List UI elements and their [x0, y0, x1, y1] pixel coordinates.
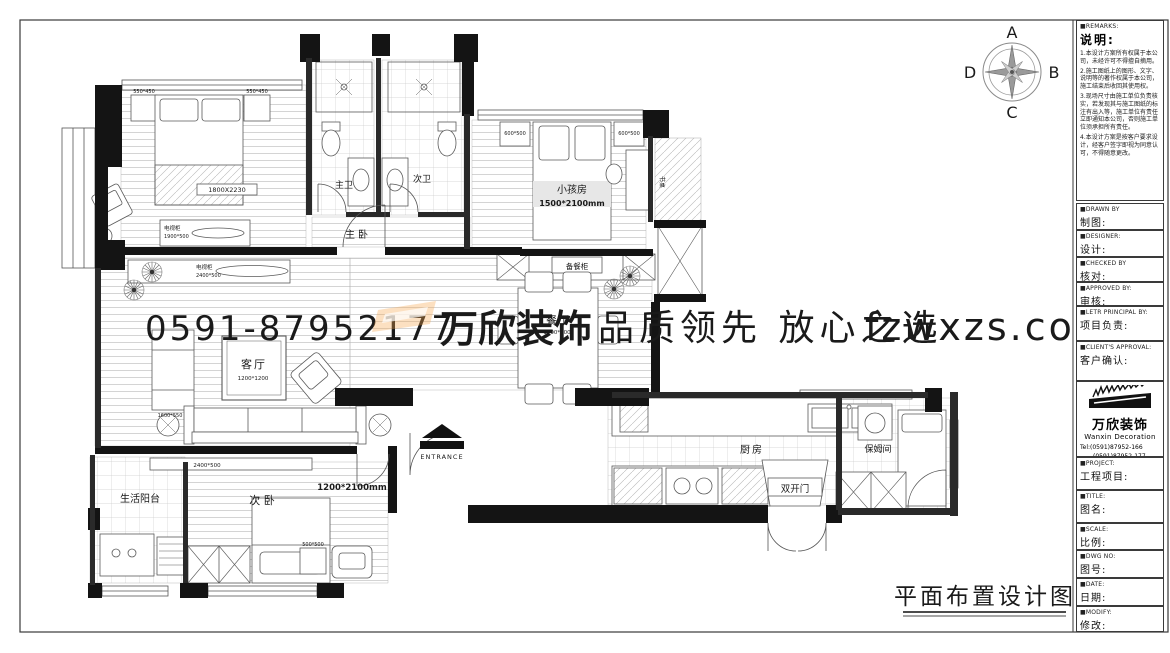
checked-by-zh-label: 核对:	[1080, 268, 1160, 282]
remarks-en-label: ■REMARKS:	[1080, 23, 1160, 30]
company-name-en: Wanxin Decoration	[1080, 433, 1160, 441]
modify-zh-label: 修改:	[1080, 617, 1160, 632]
master-bath-label: 主卫	[335, 179, 353, 191]
client-approval-zh-label: 客户确认:	[1080, 352, 1160, 367]
principal-box: ■LETR PRINCIPAL BY: 项目负责:	[1076, 306, 1164, 341]
drawing-sheet: ENTRANCE 主卧 主卫 次卫 小孩房 1500*2100mm 客厅 120…	[0, 0, 1170, 653]
laundry-balcony-label: 生活阳台	[120, 492, 160, 505]
client-approval-box: ■CLIENT'S APPROVAL: 客户确认:	[1076, 341, 1164, 381]
modify-box: ■MODIFY: 修改:	[1076, 606, 1164, 632]
client-approval-en-label: ■CLIENT'S APPROVAL:	[1080, 344, 1160, 351]
remarks-note: 1.本设计方案所有权属于本公司，未经许可不得擅自摘用。	[1080, 50, 1160, 66]
master-tv-cabinet-label: 电视柜	[164, 224, 181, 232]
living-tv-cabinet-label: 电视柜	[196, 263, 213, 271]
company-box: 万欣装饰 Wanxin Decoration Tel:(0591)87952-1…	[1076, 381, 1164, 457]
entrance-marker: ENTRANCE	[420, 424, 464, 461]
second-bedroom-size: 1200*2100mm	[317, 483, 387, 493]
second-bedroom-label: 次 卧	[249, 493, 275, 507]
designer-zh-label: 设计:	[1080, 241, 1160, 256]
remarks-zh-label: 说明:	[1080, 31, 1160, 48]
scale-zh-label: 比例:	[1080, 534, 1160, 549]
kids-cabinet-left-size: 600*500	[504, 131, 526, 137]
watermark: 0591-87952177 万欣装饰 品质领先 放心之选 fzwxzs.com	[145, 301, 1115, 351]
principal-zh-label: 项目负责:	[1080, 317, 1160, 332]
compass-east-label: B	[1049, 63, 1060, 82]
drawn-by-en-label: ■DRAWN BY	[1080, 206, 1160, 213]
drawn-by-zh-label: 制图:	[1080, 214, 1160, 229]
checked-by-box: ■CHECKED BY 核对:	[1076, 257, 1164, 282]
wardrobe-cabinet-size: 2400*500	[193, 463, 221, 469]
remarks-box: ■REMARKS: 说明: 1.本设计方案所有权属于本公司，未经许可不得擅自摘用…	[1076, 20, 1164, 201]
designer-en-label: ■DESIGNER:	[1080, 233, 1160, 240]
master-tv-cabinet-size: 1900*500	[164, 234, 189, 240]
designer-box: ■DESIGNER: 设计:	[1076, 230, 1164, 257]
scale-box: ■SCALE: 比例:	[1076, 523, 1164, 550]
kitchen-label: 厨房	[740, 443, 764, 456]
drawing-title: 平面布置设计图	[894, 584, 1076, 616]
checked-by-en-label: ■CHECKED BY	[1080, 260, 1160, 267]
serving-cabinet-label: 备餐柜	[566, 261, 589, 271]
compass-rose: A B C D	[964, 23, 1060, 122]
title-zh-label: 图名:	[1080, 501, 1160, 516]
title-box: ■TITLE: 图名:	[1076, 490, 1164, 523]
balcony-fixtures	[100, 534, 185, 576]
date-box: ■DATE: 日期:	[1076, 578, 1164, 606]
date-en-label: ■DATE:	[1080, 581, 1160, 588]
dwg-no-en-label: ■DWG NO:	[1080, 553, 1160, 560]
entrance-label: ENTRANCE	[420, 453, 463, 461]
living-tv-cabinet-size: 2400*500	[196, 273, 221, 279]
scale-en-label: ■SCALE:	[1080, 526, 1160, 533]
shaft	[658, 226, 702, 296]
dwg-no-zh-label: 图号:	[1080, 561, 1160, 576]
desk-label: 书桌	[658, 176, 666, 188]
modify-en-label: ■MODIFY:	[1080, 609, 1160, 616]
dwg-no-box: ■DWG NO: 图号:	[1076, 550, 1164, 578]
date-zh-label: 日期:	[1080, 589, 1160, 604]
project-zh-label: 工程项目:	[1080, 468, 1160, 483]
nightstand-right-size: 550*450	[246, 89, 268, 95]
project-en-label: ■PROJECT:	[1080, 460, 1160, 467]
double-door-label: 双开门	[781, 483, 810, 495]
company-name-zh: 万欣装饰	[1080, 414, 1160, 433]
remarks-note: 3.现场尺寸由施工单位负责核实，若发现其与施工图纸的标注有出入等，施工单位有责任…	[1080, 93, 1160, 132]
compass-west-label: D	[964, 63, 976, 82]
remarks-note: 4.本设计方案是按客户要求设计，经客户签字即视为同意认可，不得随意更改。	[1080, 134, 1160, 157]
nanny-room-label: 保姆间	[864, 443, 891, 455]
master-bedroom-label: 主卧	[345, 228, 371, 241]
company-logo-icon	[1080, 385, 1160, 413]
title-block: ■REMARKS: 说明: 1.本设计方案所有权属于本公司，未经许可不得擅自摘用…	[1076, 20, 1168, 632]
drawn-by-box: ■DRAWN BY 制图:	[1076, 203, 1164, 230]
compass-north-label: A	[1007, 23, 1018, 42]
kids-room-label: 小孩房	[557, 183, 587, 196]
kids-room-size: 1500*2100mm	[539, 199, 604, 208]
watermark-logo-text: 万欣装饰	[440, 307, 592, 351]
title-en-label: ■TITLE:	[1080, 493, 1160, 500]
approved-by-box: ■APPROVED BY: 审核:	[1076, 282, 1164, 306]
bedside-table-size: 500*500	[302, 542, 324, 548]
remarks-note: 2.施工图纸上的图形、文字、说明等的著作权属于本公司，施工结束后收回其使用权。	[1080, 68, 1160, 91]
living-room-label: 客厅	[241, 357, 267, 371]
drawing-title-text: 平面布置设计图	[894, 584, 1076, 610]
master-bed-size: 1800X2230	[208, 186, 246, 194]
kids-cabinet-right-size: 600*500	[618, 131, 640, 137]
approved-by-en-label: ■APPROVED BY:	[1080, 285, 1160, 292]
floor-plan-image: ENTRANCE 主卧 主卫 次卫 小孩房 1500*2100mm 客厅 120…	[0, 0, 1170, 653]
project-box: ■PROJECT: 工程项目:	[1076, 457, 1164, 490]
principal-en-label: ■LETR PRINCIPAL BY:	[1080, 309, 1160, 316]
second-bath-label: 次卫	[413, 173, 431, 185]
compass-south-label: C	[1006, 103, 1017, 122]
nightstand-left-size: 550*450	[133, 89, 155, 95]
company-tel1: Tel:(0591)87952-166	[1080, 443, 1160, 452]
living-room-size: 1200*1200	[238, 376, 269, 382]
side-cabinet-size: 1600*550	[158, 413, 183, 419]
approved-by-zh-label: 审核:	[1080, 293, 1160, 306]
